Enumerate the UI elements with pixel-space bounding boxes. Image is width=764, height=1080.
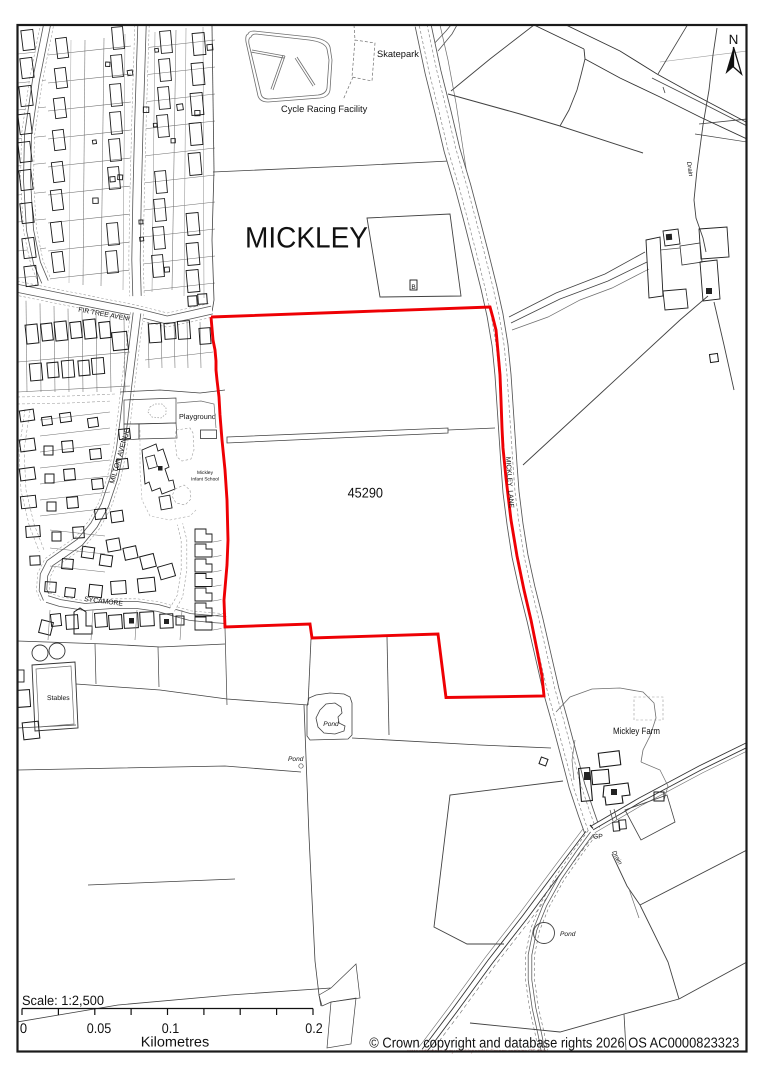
svg-text:Kilometres: Kilometres xyxy=(141,1035,210,1051)
svg-text:Scale: 1:2,500: Scale: 1:2,500 xyxy=(22,993,104,1008)
svg-text:Infant School: Infant School xyxy=(191,477,219,483)
svg-text:MICKLEY: MICKLEY xyxy=(245,222,368,255)
svg-text:GP: GP xyxy=(593,834,603,841)
svg-text:Pond: Pond xyxy=(560,931,576,938)
svg-text:0.05: 0.05 xyxy=(87,1020,112,1036)
svg-text:0.2: 0.2 xyxy=(305,1020,323,1036)
svg-text:Pond: Pond xyxy=(288,756,304,763)
svg-text:Stables: Stables xyxy=(47,695,70,702)
svg-text:Pond: Pond xyxy=(323,721,339,728)
svg-text:Playground: Playground xyxy=(179,412,216,421)
svg-text:0: 0 xyxy=(20,1020,27,1036)
svg-text:B: B xyxy=(411,284,415,291)
svg-text:45290: 45290 xyxy=(348,485,384,501)
svg-text:N: N xyxy=(729,32,739,47)
svg-text:Skatepark: Skatepark xyxy=(377,49,419,59)
svg-text:Mickley Farm: Mickley Farm xyxy=(613,726,660,736)
svg-text:Cycle Racing Facility: Cycle Racing Facility xyxy=(281,104,368,114)
svg-text:Mickley: Mickley xyxy=(197,470,214,476)
